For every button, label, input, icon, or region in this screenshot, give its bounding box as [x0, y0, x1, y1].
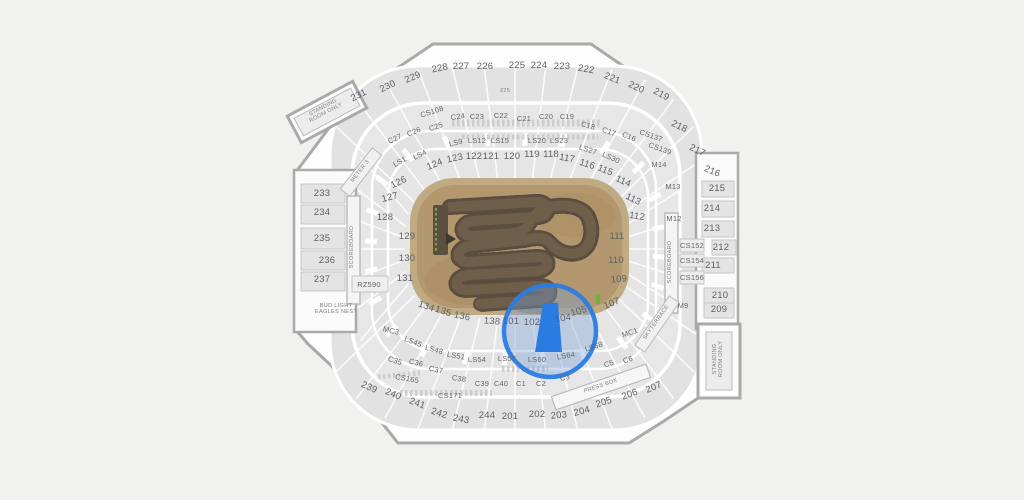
section-label-ls20[interactable]: LS20: [528, 137, 546, 145]
section-label-218[interactable]: 218: [669, 119, 688, 135]
section-label-225[interactable]: 225: [509, 61, 525, 71]
section-label-129[interactable]: 129: [399, 232, 415, 242]
section-label-244[interactable]: 244: [479, 411, 495, 421]
section-label-128[interactable]: 128: [377, 213, 393, 223]
section-label-cs152[interactable]: CS152: [680, 242, 704, 250]
section-label-112[interactable]: 112: [629, 211, 646, 223]
section-label-mc1[interactable]: MC1: [621, 327, 639, 340]
section-label-222[interactable]: 222: [577, 64, 595, 77]
section-label-c24[interactable]: C24: [450, 112, 465, 122]
section-label-223[interactable]: 223: [554, 62, 570, 72]
seating-map-canvas: 2312302292282272262252242232222212202192…: [0, 0, 1024, 500]
section-label-ls4[interactable]: LS4: [412, 148, 428, 161]
section-label-242[interactable]: 242: [430, 407, 449, 422]
section-label-124[interactable]: 124: [426, 157, 445, 172]
section-label-cs156[interactable]: CS156: [680, 274, 704, 282]
section-label-m9[interactable]: M9: [678, 302, 689, 310]
section-label-c39[interactable]: C39: [475, 380, 489, 388]
section-label-115[interactable]: 115: [596, 163, 614, 178]
section-label-c22[interactable]: C22: [494, 112, 508, 120]
section-label-c27[interactable]: C27: [387, 132, 403, 145]
section-label-206[interactable]: 206: [621, 388, 640, 403]
section-label-ls51[interactable]: LS51: [446, 351, 465, 362]
section-label-229[interactable]: 229: [403, 70, 422, 86]
section-label-c1[interactable]: C1: [516, 380, 526, 388]
section-label-110[interactable]: 110: [608, 256, 624, 266]
section-label-ls60[interactable]: LS60: [528, 356, 546, 364]
section-label-c35[interactable]: C35: [387, 355, 403, 367]
section-label-134[interactable]: 134: [417, 300, 436, 315]
section-label-m14[interactable]: M14: [651, 161, 666, 169]
section-label-239[interactable]: 239: [359, 380, 378, 396]
section-label-ls12[interactable]: LS12: [468, 137, 486, 145]
section-label-114[interactable]: 114: [614, 174, 632, 190]
section-label-221[interactable]: 221: [603, 71, 622, 86]
section-label-121[interactable]: 121: [483, 152, 499, 162]
landmark-bud-light-eagles-nest: BUD LIGHT EAGLES NEST: [315, 304, 357, 316]
section-label-cs139[interactable]: CS139: [647, 141, 672, 157]
section-label-ls48[interactable]: LS48: [424, 344, 444, 357]
landmark-press-box: PRESS BOX: [583, 379, 618, 396]
section-label-c6[interactable]: C6: [622, 355, 634, 366]
section-labels-layer: 2312302292282272262252242232222212202192…: [0, 0, 1024, 500]
section-label-224[interactable]: 224: [531, 61, 547, 71]
section-label-228[interactable]: 228: [431, 62, 449, 75]
section-label-230[interactable]: 230: [378, 79, 397, 95]
section-label-201[interactable]: 201: [502, 412, 518, 422]
section-label-136[interactable]: 136: [453, 310, 471, 323]
section-label-123[interactable]: 123: [446, 152, 464, 165]
section-label-212[interactable]: 212: [713, 243, 729, 253]
section-label-203[interactable]: 203: [550, 410, 567, 422]
section-label-105[interactable]: 105: [570, 305, 589, 319]
section-label-cs108[interactable]: CS108: [419, 105, 444, 120]
section-label-c17[interactable]: C17: [601, 126, 617, 138]
landmark-standing-room-only: STANDING ROOM ONLY: [306, 97, 344, 124]
section-label-127[interactable]: 127: [381, 191, 399, 205]
landmark-meter-3: METER 3: [351, 160, 372, 184]
section-label-ls54[interactable]: LS54: [468, 356, 486, 364]
section-label-227[interactable]: 227: [453, 62, 469, 72]
section-label-ls15[interactable]: LS15: [491, 137, 509, 145]
section-label-126[interactable]: 126: [389, 175, 408, 191]
section-label-117[interactable]: 117: [558, 153, 575, 166]
section-label-211[interactable]: 211: [705, 261, 721, 271]
section-label-ls30[interactable]: LS30: [601, 151, 621, 166]
section-label-234[interactable]: 234: [314, 208, 330, 218]
section-label-c40[interactable]: C40: [494, 380, 508, 388]
section-label-111[interactable]: 111: [609, 232, 624, 242]
section-label-210[interactable]: 210: [712, 291, 728, 301]
section-label-c25[interactable]: C25: [428, 121, 444, 133]
section-label-204[interactable]: 204: [573, 405, 591, 419]
section-label-213[interactable]: 213: [704, 224, 720, 234]
landmark-scoreboard: SCOREBOARD: [350, 226, 356, 269]
section-label-202[interactable]: 202: [529, 410, 545, 420]
section-label-101[interactable]: 101: [503, 317, 519, 327]
section-label-138[interactable]: 138: [483, 316, 500, 327]
section-label-rz590[interactable]: RZ590: [357, 281, 381, 289]
section-label-c38[interactable]: C38: [451, 374, 466, 384]
section-label-220[interactable]: 220: [626, 80, 645, 96]
section-label-ls1[interactable]: LS1: [392, 155, 408, 169]
section-label-236[interactable]: 236: [319, 256, 335, 266]
section-label-219[interactable]: 219: [651, 87, 670, 104]
section-label-135[interactable]: 135: [434, 305, 453, 320]
section-label-207[interactable]: 207: [645, 380, 664, 395]
section-label-233[interactable]: 233: [314, 189, 330, 199]
section-label-ls27[interactable]: LS27: [578, 143, 598, 156]
section-label-209[interactable]: 209: [711, 305, 727, 315]
section-label-120[interactable]: 120: [504, 152, 520, 162]
section-label-m12[interactable]: M12: [666, 215, 681, 223]
section-label-122[interactable]: 122: [466, 152, 482, 162]
section-label-107[interactable]: 107: [603, 296, 622, 311]
landmark-scoreboard: SCOREBOARD: [668, 241, 674, 284]
section-label-ls45[interactable]: LS45: [403, 335, 423, 349]
section-label-c20[interactable]: C20: [539, 113, 553, 121]
section-label-c5[interactable]: C5: [603, 359, 615, 370]
section-label-c18[interactable]: C18: [580, 120, 596, 132]
landmark-standing-room-only: STANDING ROOM ONLY: [713, 341, 725, 377]
section-label-c16[interactable]: C16: [621, 131, 637, 144]
section-label-109[interactable]: 109: [610, 274, 627, 286]
section-label-cs154[interactable]: CS154: [680, 257, 704, 265]
section-label-240[interactable]: 240: [384, 387, 403, 402]
section-label-ls23[interactable]: LS23: [550, 137, 568, 145]
section-label-c37[interactable]: C37: [428, 365, 444, 376]
section-label-mc3[interactable]: MC3: [382, 325, 400, 337]
section-label-216[interactable]: 216: [703, 164, 722, 179]
section-label-231[interactable]: 231: [349, 88, 368, 104]
section-label-116[interactable]: 116: [578, 158, 596, 172]
section-label-130[interactable]: 130: [399, 254, 415, 264]
section-label-c21[interactable]: C21: [517, 115, 531, 123]
section-label-131[interactable]: 131: [397, 274, 413, 284]
section-label-m13[interactable]: M13: [665, 183, 680, 191]
section-label-c19[interactable]: C19: [560, 113, 574, 121]
section-label-c2[interactable]: C2: [536, 380, 546, 388]
section-label-118[interactable]: 118: [543, 150, 559, 160]
section-label-217[interactable]: 217: [687, 143, 706, 159]
section-label-ls9[interactable]: LS9: [448, 137, 463, 148]
section-label-ls64[interactable]: LS64: [556, 351, 575, 362]
landmark-skyterrace: SKYTERRACE: [643, 305, 671, 342]
section-label-226[interactable]: 226: [477, 62, 493, 72]
section-label-215[interactable]: 215: [709, 184, 725, 194]
section-label-113[interactable]: 113: [624, 192, 643, 208]
landmark-225: 225: [500, 89, 510, 95]
section-label-ls68[interactable]: LS68: [584, 340, 604, 353]
section-label-c36[interactable]: C36: [408, 357, 424, 368]
section-label-102[interactable]: 102: [524, 318, 540, 328]
section-label-119[interactable]: 119: [524, 150, 540, 160]
section-label-104[interactable]: 104: [554, 313, 572, 325]
section-label-241[interactable]: 241: [408, 397, 427, 412]
section-label-243[interactable]: 243: [452, 414, 470, 427]
section-label-ls57[interactable]: LS57: [498, 355, 516, 363]
section-label-205[interactable]: 205: [595, 396, 614, 411]
section-label-235[interactable]: 235: [314, 234, 330, 244]
section-label-c26[interactable]: C26: [406, 126, 422, 139]
section-label-237[interactable]: 237: [314, 275, 330, 285]
section-label-cs171[interactable]: CS171: [438, 392, 462, 400]
section-label-214[interactable]: 214: [704, 204, 720, 214]
section-label-cs165[interactable]: CS165: [395, 373, 420, 385]
section-label-c3[interactable]: C3: [559, 373, 570, 383]
section-label-c23[interactable]: C23: [470, 113, 484, 121]
